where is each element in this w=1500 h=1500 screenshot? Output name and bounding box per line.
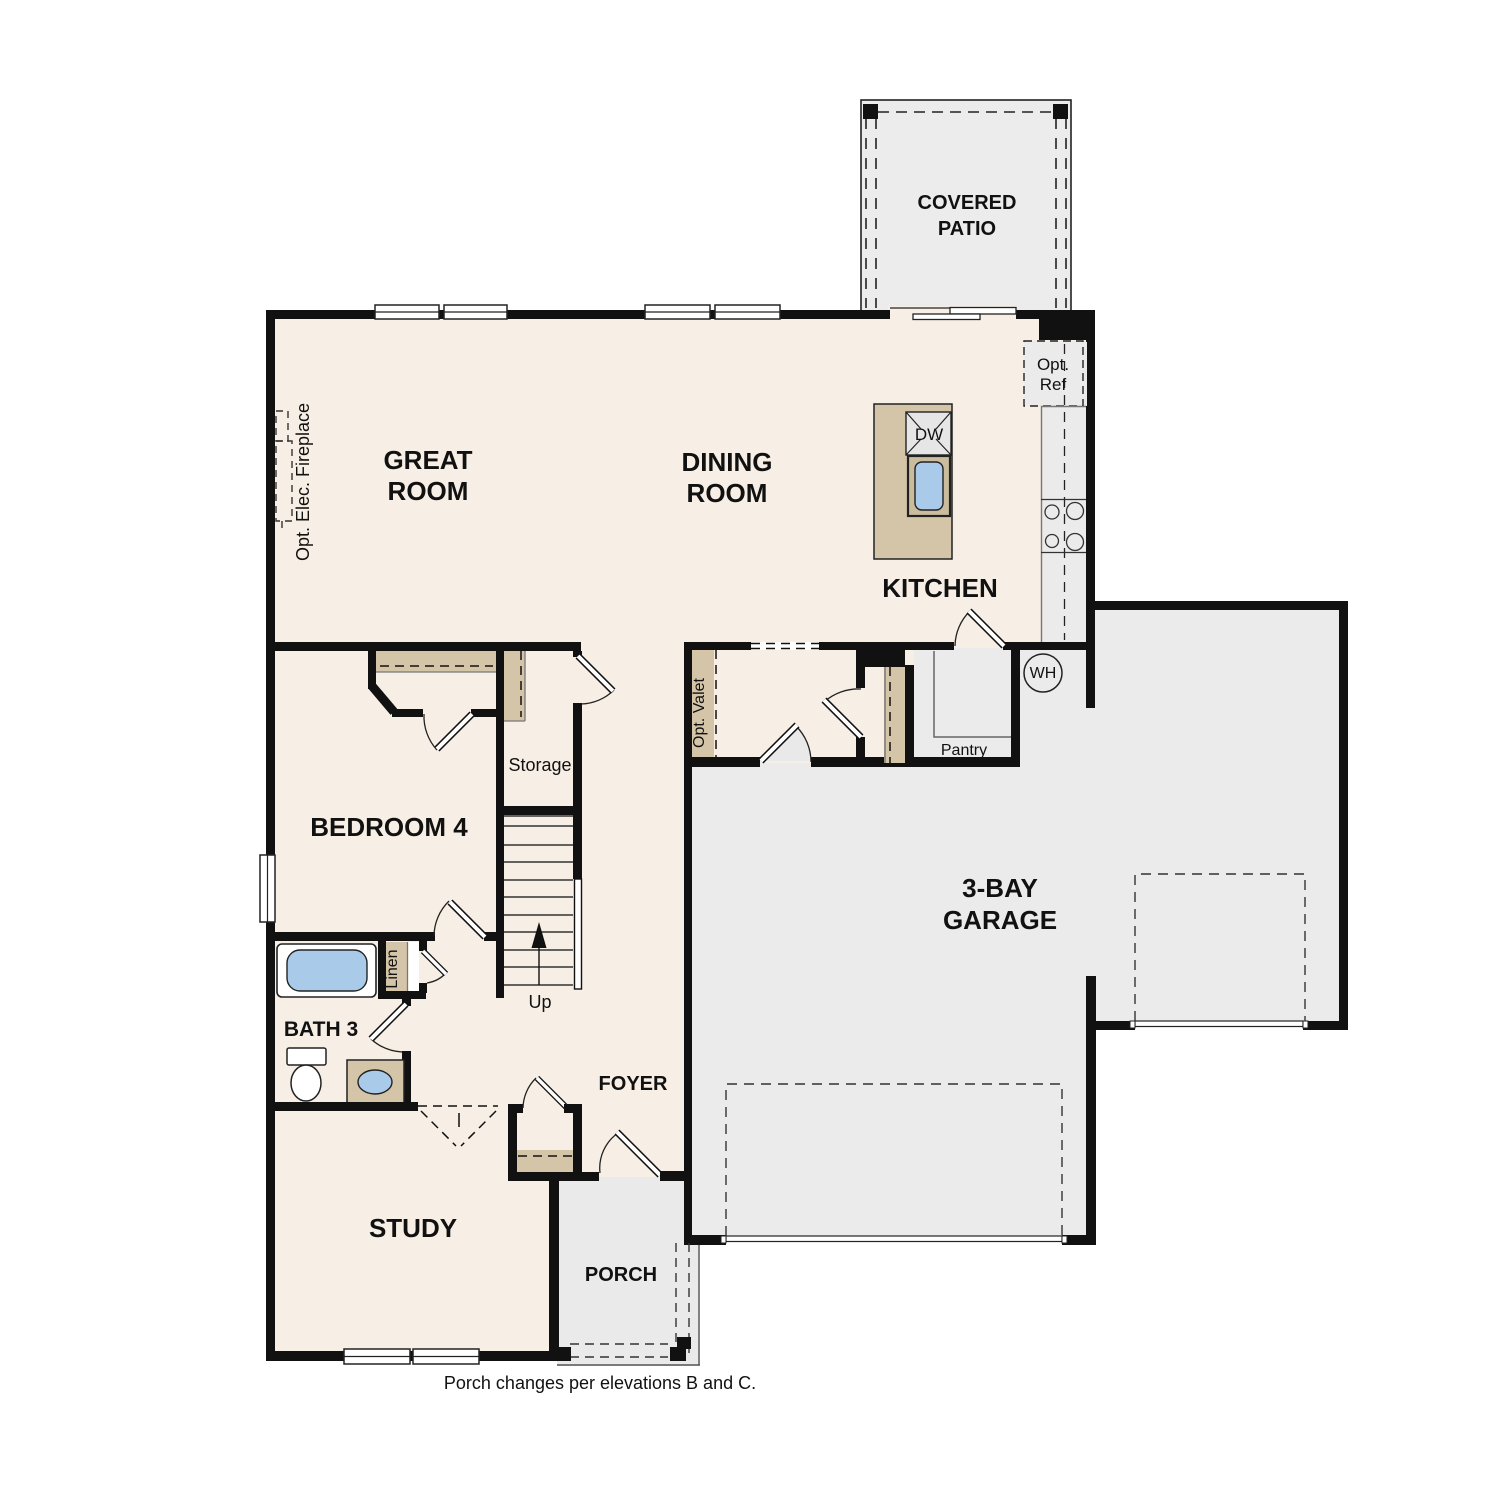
svg-text:DINING: DINING — [682, 447, 773, 477]
svg-text:COVERED: COVERED — [918, 192, 1017, 214]
svg-text:3-BAY: 3-BAY — [962, 873, 1038, 903]
svg-text:ROOM: ROOM — [388, 476, 469, 506]
svg-text:Up: Up — [528, 992, 551, 1012]
svg-text:GREAT: GREAT — [383, 445, 472, 475]
svg-text:Opt. Elec. Fireplace: Opt. Elec. Fireplace — [293, 403, 313, 561]
svg-text:PORCH: PORCH — [585, 1264, 657, 1286]
svg-text:WH: WH — [1030, 665, 1057, 682]
svg-text:PATIO: PATIO — [938, 218, 996, 240]
svg-text:Opt. Valet: Opt. Valet — [691, 677, 708, 748]
svg-text:Storage: Storage — [508, 755, 571, 775]
svg-text:Porch changes per elevations B: Porch changes per elevations B and C. — [444, 1373, 756, 1393]
svg-text:ROOM: ROOM — [687, 478, 768, 508]
svg-text:Linen: Linen — [384, 949, 401, 988]
svg-text:FOYER: FOYER — [599, 1073, 668, 1095]
svg-text:BATH 3: BATH 3 — [284, 1018, 358, 1041]
svg-text:Pantry: Pantry — [941, 742, 987, 759]
svg-text:STUDY: STUDY — [369, 1213, 457, 1243]
svg-text:BEDROOM 4: BEDROOM 4 — [310, 812, 468, 842]
svg-text:KITCHEN: KITCHEN — [882, 573, 998, 603]
svg-text:Ref: Ref — [1040, 375, 1067, 394]
svg-text:DW: DW — [915, 425, 943, 444]
svg-text:GARAGE: GARAGE — [943, 905, 1057, 935]
